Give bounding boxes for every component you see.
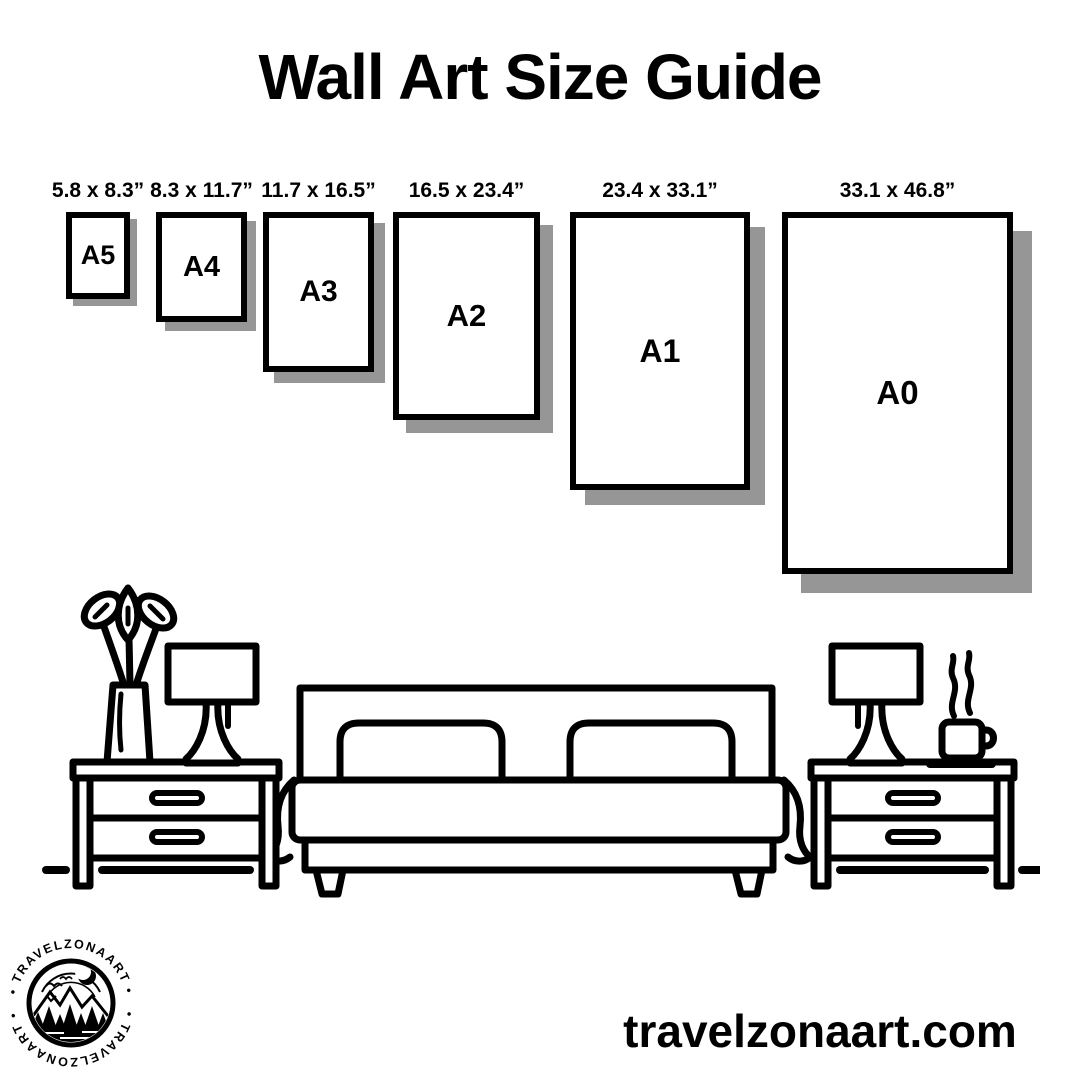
- bedroom-illustration: [40, 580, 1040, 900]
- bed-foot-right: [735, 870, 762, 894]
- paper-letter-a1: A1: [640, 333, 681, 370]
- coffee-cup: [930, 653, 994, 764]
- size-group-a0: 33.1 x 46.8” A0: [782, 166, 1013, 574]
- brand-logo-badge: • TRAVELZONAART • • TRAVELZONAART •: [2, 928, 140, 1078]
- dimension-label-a3: 11.7 x 16.5”: [263, 166, 374, 212]
- nightstand-right: [811, 762, 1014, 886]
- paper-a4: A4: [156, 212, 247, 322]
- steam: [952, 656, 956, 716]
- steam: [968, 653, 972, 713]
- dimension-label-a4: 8.3 x 11.7”: [156, 166, 247, 212]
- nightstand-left: [73, 762, 279, 886]
- paper-letter-a3: A3: [299, 275, 337, 309]
- bed-foot-left: [316, 870, 343, 894]
- paper-a5: A5: [66, 212, 130, 299]
- size-group-a2: 16.5 x 23.4” A2: [393, 166, 540, 420]
- dimension-label-a5: 5.8 x 8.3”: [66, 166, 130, 212]
- paper-a0: A0: [782, 212, 1013, 574]
- bed-mattress: [292, 780, 786, 840]
- dimension-label-a1: 23.4 x 33.1”: [570, 166, 750, 212]
- bed-illustration: [268, 688, 810, 894]
- lamp-left: [168, 646, 256, 763]
- size-group-a4: 8.3 x 11.7” A4: [156, 166, 247, 322]
- paper-a3: A3: [263, 212, 374, 372]
- dimension-label-a0: 33.1 x 46.8”: [782, 166, 1013, 212]
- paper-letter-a5: A5: [81, 240, 116, 271]
- paper-letter-a2: A2: [447, 298, 487, 334]
- dimension-label-a2: 16.5 x 23.4”: [393, 166, 540, 212]
- size-group-a3: 11.7 x 16.5” A3: [263, 166, 374, 372]
- size-group-a5: 5.8 x 8.3” A5: [66, 166, 130, 299]
- paper-a1: A1: [570, 212, 750, 490]
- paper-letter-a0: A0: [876, 374, 918, 412]
- website-text: travelzonaart.com: [600, 1004, 1040, 1058]
- paper-letter-a4: A4: [183, 251, 220, 284]
- lamp-right: [832, 646, 920, 763]
- size-group-a1: 23.4 x 33.1” A1: [570, 166, 750, 490]
- paper-a2: A2: [393, 212, 540, 420]
- page-title: Wall Art Size Guide: [0, 40, 1080, 114]
- size-guide-poster: Wall Art Size Guide 5.8 x 8.3” A5 8.3 x …: [0, 0, 1080, 1080]
